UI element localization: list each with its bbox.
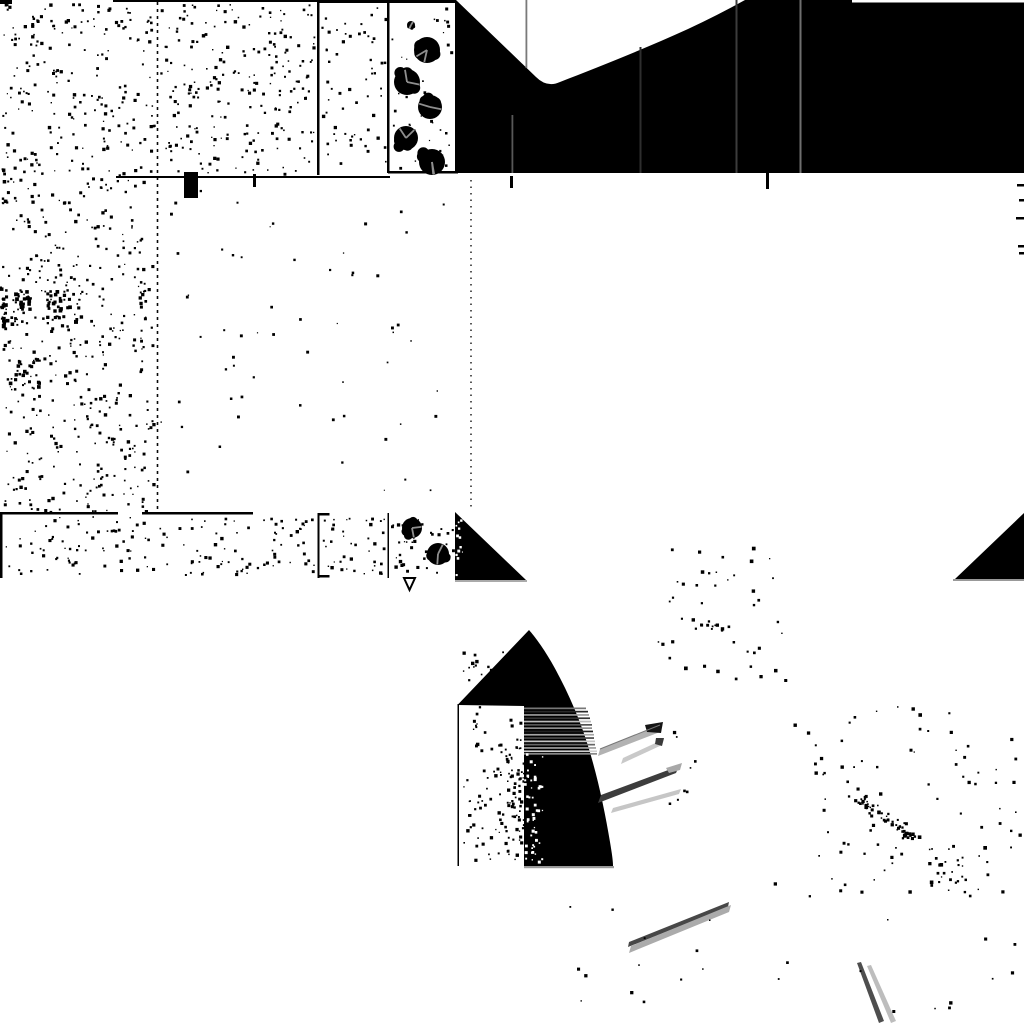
tower-left-specks-dense	[504, 739, 525, 861]
top-border-segment-3	[318, 0, 455, 3]
tower-scanline-12	[524, 744, 595, 746]
tower-scanline-11	[524, 741, 595, 743]
gray-vline-526	[526, 0, 528, 68]
gray-vline-640	[640, 47, 642, 173]
strip-top-line-a	[0, 512, 118, 515]
streak-e-dark	[628, 902, 729, 947]
streak-e-light	[629, 905, 731, 953]
right-edge-tick-1	[1017, 184, 1024, 187]
strip-bracket-318	[318, 513, 320, 578]
cluster-right-sub	[928, 848, 967, 884]
gray-vline-512	[512, 115, 514, 173]
left-edge-marks-1	[2, 168, 8, 204]
strip-field-2-speckle	[323, 518, 386, 575]
tower-scanline-8	[524, 731, 593, 733]
tree-top-1	[414, 37, 440, 63]
strip-left-border	[0, 513, 3, 578]
cluster-mid-chain	[700, 620, 730, 630]
cluster-right-chain	[854, 795, 916, 840]
tower-left-vline	[458, 704, 460, 866]
square-blob	[184, 172, 198, 198]
strip-border-388	[388, 513, 390, 578]
tower-scanline-10	[524, 737, 594, 739]
field-b-speckle	[160, 4, 315, 176]
strip-triangle-right	[955, 513, 1024, 579]
strip-bracket-318-bottom-serif	[318, 575, 330, 578]
tower-scanline-15	[524, 753, 597, 755]
tower-scanline-4	[524, 717, 590, 719]
tower-scanline-9	[524, 734, 594, 736]
tower-scanline-7	[524, 727, 592, 729]
tree-strip-2	[426, 543, 450, 565]
tick-x254	[253, 174, 256, 187]
gray-vline-736	[736, 0, 738, 173]
tree-top-2	[394, 67, 420, 95]
figure-canvas	[0, 0, 1024, 1024]
top-border-segment-2	[113, 0, 318, 2]
mid-sparse-speckle	[161, 190, 445, 491]
field-a-cluster-1	[2, 289, 32, 326]
binarized-aerial-figure	[0, 0, 1024, 1024]
streak-c-tail	[666, 763, 682, 773]
right-edge-tick-3	[1016, 217, 1024, 220]
cluster-mid-speckle	[658, 547, 788, 682]
field-border-317	[317, 0, 320, 175]
nabla-marker	[404, 578, 415, 590]
right-edge-tick-5	[1019, 252, 1024, 255]
tower-scanline-6	[524, 724, 592, 726]
tower-scanline-14	[524, 750, 597, 752]
strip-field-1-speckle	[6, 516, 315, 576]
strip-triangle-right-underline	[953, 579, 1024, 581]
tick-x767	[766, 173, 769, 189]
tower-scanline-3	[524, 714, 589, 716]
gray-vline-800	[800, 0, 802, 173]
tree-top-sapling	[407, 21, 415, 30]
top-right-white-sliver	[852, 0, 1024, 3]
tower-scanline-13	[524, 747, 596, 749]
streak-c-band	[598, 766, 679, 803]
left-edge-marks-2	[0, 287, 8, 331]
top-border-segment-1	[0, 0, 12, 4]
tower-scanline-5	[524, 721, 591, 723]
field-a-speckle	[2, 3, 156, 513]
strip-top-line-b	[142, 512, 253, 515]
right-edge-sparse-dots	[992, 738, 1022, 980]
right-edge-tick-2	[1019, 199, 1024, 202]
cluster-right-speckle	[794, 706, 1005, 897]
tower-scanline-1	[524, 708, 586, 710]
tick-x511	[510, 176, 513, 188]
tree-top-4	[394, 126, 418, 152]
strip-bracket-318-top-serif	[318, 513, 330, 516]
strip-triangle-left-underline	[455, 580, 527, 582]
field-c-speckle	[321, 7, 387, 165]
field-border-387	[387, 0, 390, 173]
tower-underline	[524, 866, 614, 868]
strip-triangle-left	[455, 512, 526, 580]
tree-top-3	[418, 93, 442, 119]
right-edge-tick-4	[1018, 245, 1024, 248]
tower-scanline-2	[524, 711, 588, 713]
